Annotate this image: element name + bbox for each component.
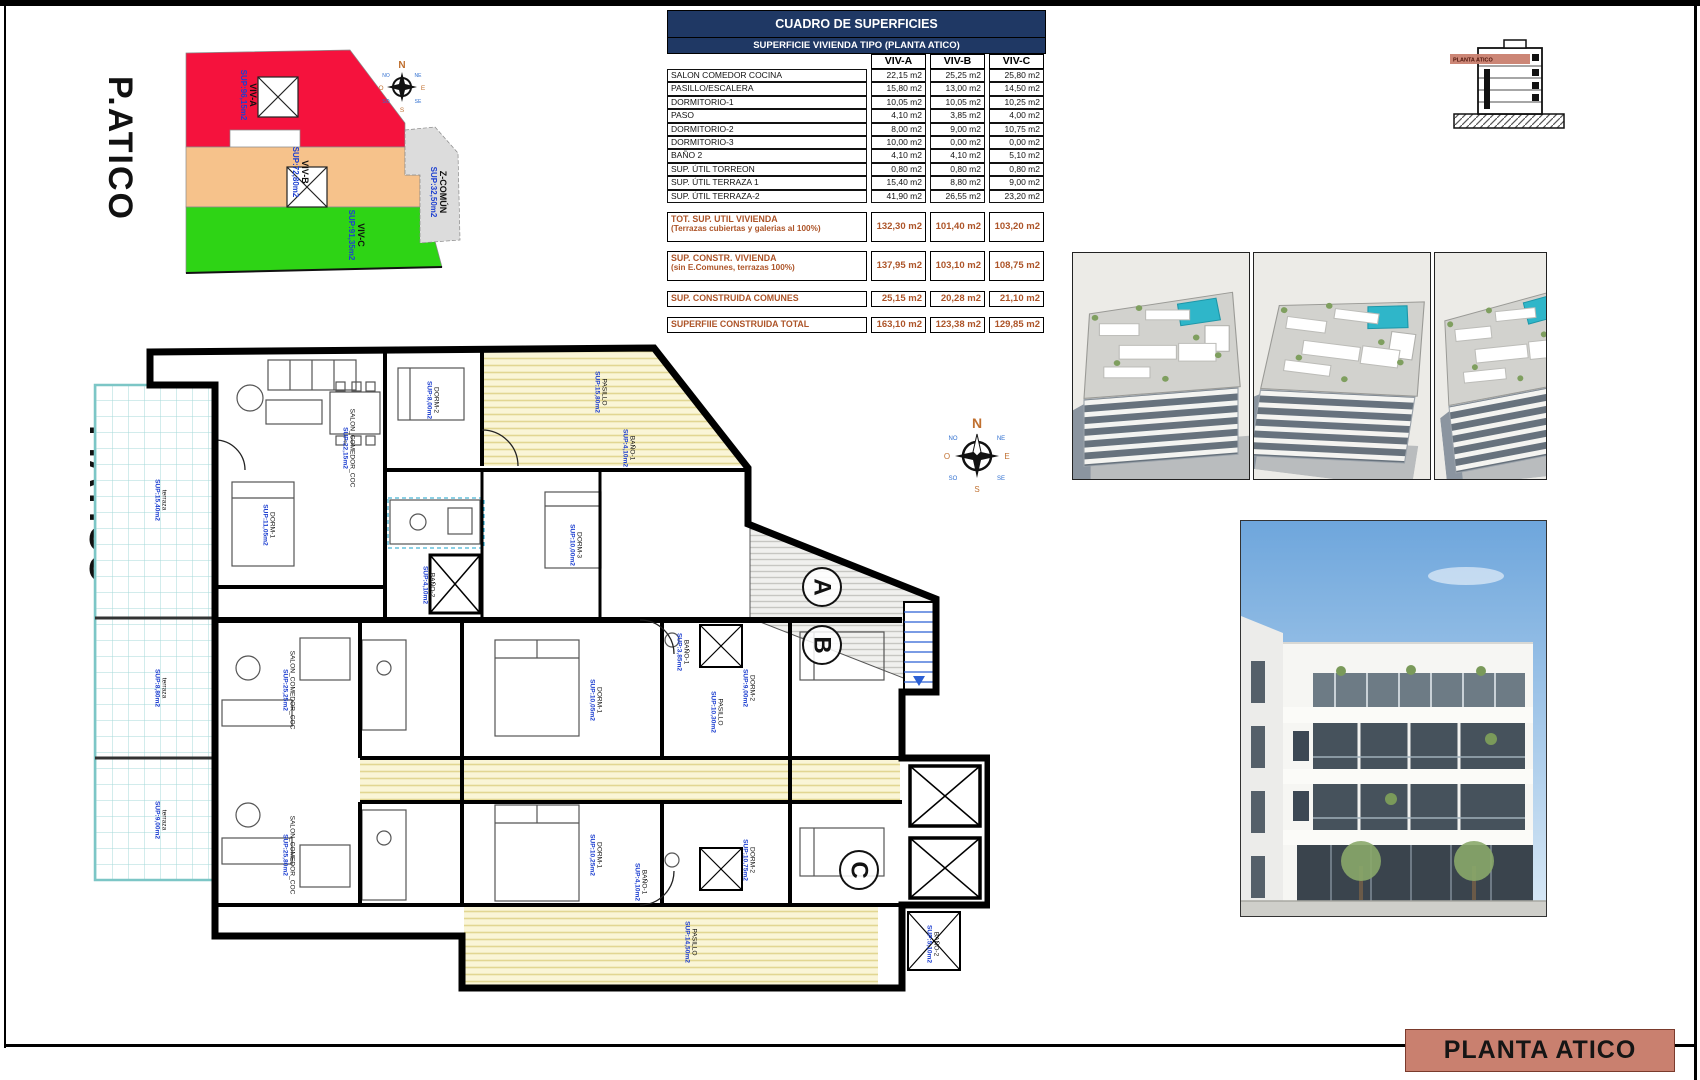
row-value: 13,00 m2 — [930, 82, 985, 95]
zone-label-vivb: VIV-BSUP:72,80m2 — [290, 147, 310, 198]
row-value: 15,40 m2 — [871, 176, 926, 189]
sheet-border-left — [4, 0, 6, 1048]
summary-value: 20,28 m2 — [930, 291, 985, 307]
floor-plan — [85, 332, 990, 997]
sheet-title: PLANTA ATICO — [1444, 1036, 1637, 1065]
table-row: DORMITORIO-310,00 m20,00 m20,00 m2 — [667, 136, 1046, 149]
row-value: 3,85 m2 — [930, 109, 985, 122]
row-value: 4,00 m2 — [989, 109, 1044, 122]
plan-room-label: BAÑO-2SUP:4,10m2 — [421, 566, 436, 604]
summary-value: 101,40 m2 — [930, 212, 985, 242]
plan-room-label: PASILLOSUP:15,80m2 — [593, 371, 608, 413]
plan-room-label: DORM-1SUP:11,05m2 — [261, 504, 276, 545]
summary-value: 108,75 m2 — [989, 251, 1044, 281]
corridor-hatch-mid — [360, 760, 900, 802]
summary-label: TOT. SUP. UTIL VIVIENDA(Terrazas cubiert… — [667, 212, 867, 242]
svg-text:SE: SE — [997, 476, 1005, 482]
row-value: 10,05 m2 — [930, 96, 985, 109]
svg-text:NE: NE — [997, 436, 1005, 442]
summary-label: SUPERFIIE CONSTRUIDA TOTAL — [667, 317, 867, 333]
unit-marker-a: A — [802, 567, 842, 607]
row-label: PASILLO/ESCALERA — [667, 82, 867, 95]
row-value: 4,10 m2 — [871, 109, 926, 122]
sheet-border-right — [1694, 0, 1697, 1080]
summary-value: 25,15 m2 — [871, 291, 926, 307]
row-value: 4,10 m2 — [871, 149, 926, 162]
summary-row: TOT. SUP. UTIL VIVIENDA(Terrazas cubiert… — [667, 212, 1046, 242]
zone-label-zcomn: Z-COMÚNSUP:32,50m2 — [428, 167, 448, 218]
zone-label-viva: VIV-ASUP:96,15m2 — [238, 70, 258, 121]
svg-text:SO: SO — [949, 476, 958, 482]
table-row: BAÑO 24,10 m24,10 m25,10 m2 — [667, 149, 1046, 162]
svg-text:E: E — [421, 85, 426, 92]
surface-table-header: VIV-AVIV-BVIV-C — [667, 54, 1046, 69]
summary-label: SUP. CONSTRUIDA COMUNES — [667, 291, 867, 307]
table-row: SUP. ÚTIL TERRAZA 115,40 m28,80 m29,00 m… — [667, 176, 1046, 189]
summary-value: 21,10 m2 — [989, 291, 1044, 307]
plan-room-label: BAÑO-1SUP:4,10m2 — [633, 863, 648, 901]
table-row: DORMITORIO-28,00 m29,00 m210,75 m2 — [667, 123, 1046, 136]
plan-room-label: BAÑO-1SUP:3,85m2 — [675, 633, 690, 671]
unit-marker-b: B — [802, 625, 842, 665]
surface-table-subtitle: SUPERFICIE VIVIENDA TIPO (PLANTA ATICO) — [667, 38, 1046, 54]
row-label: PASO — [667, 109, 867, 122]
table-row: PASILLO/ESCALERA15,80 m213,00 m214,50 m2 — [667, 82, 1046, 95]
table-row: SALON COMEDOR COCINA22,15 m225,25 m225,8… — [667, 69, 1046, 82]
row-value: 9,00 m2 — [989, 176, 1044, 189]
summary-row: SUP. CONSTR. VIVIENDA(sin E.Comunes, ter… — [667, 251, 1046, 281]
plan-room-label: SALON_COMEDOR_COCSUP:25,25m2 — [281, 651, 296, 730]
summary-value: 137,95 m2 — [871, 251, 926, 281]
summary-row: SUPERFIIE CONSTRUIDA TOTAL163,10 m2123,3… — [667, 317, 1046, 333]
plan-room-label: BAÑO-2SUP:5,10m2 — [925, 925, 940, 963]
row-value: 26,55 m2 — [930, 190, 985, 203]
table-row: SUP. ÚTIL TORREON0,80 m20,80 m20,80 m2 — [667, 163, 1046, 176]
plan-room-label: DORM-2SUP:10,75m2 — [741, 839, 756, 881]
plan-room-label: terrazaSUP:15,40m2 — [153, 479, 168, 521]
summary-value: 163,10 m2 — [871, 317, 926, 333]
stair-hall-hatch — [482, 350, 746, 466]
plan-room-label: terrazaSUP:8,80m2 — [153, 669, 168, 707]
building-facade-photo — [1240, 520, 1547, 917]
plan-room-label: DORM-2SUP:8,00m2 — [425, 381, 440, 419]
row-label: BAÑO 2 — [667, 149, 867, 162]
row-value: 8,80 m2 — [930, 176, 985, 189]
svg-text:NO: NO — [949, 436, 958, 442]
summary-value: 103,20 m2 — [989, 212, 1044, 242]
row-value: 41,90 m2 — [871, 190, 926, 203]
svg-text:NO: NO — [382, 73, 390, 79]
zone-label-vivc: VIV-CSUP:91,35m2 — [346, 210, 366, 261]
plan-room-label: terrazaSUP:9,00m2 — [153, 801, 168, 839]
row-label: SUP. ÚTIL TORREON — [667, 163, 867, 176]
row-value: 25,25 m2 — [930, 69, 985, 82]
row-label: SUP. ÚTIL TERRAZA-2 — [667, 190, 867, 203]
sheet-title-bar: PLANTA ATICO — [1405, 1029, 1675, 1072]
summary-value: 123,38 m2 — [930, 317, 985, 333]
plan-room-label: PASILLOSUP:14,50m2 — [683, 921, 698, 963]
svg-text:NE: NE — [415, 73, 423, 79]
svg-text:N: N — [972, 415, 982, 431]
row-value: 10,00 m2 — [871, 136, 926, 149]
surface-table-rows: SALON COMEDOR COCINA22,15 m225,25 m225,8… — [667, 69, 1046, 203]
svg-text:E: E — [1004, 452, 1009, 461]
stairs-icon — [904, 602, 934, 690]
row-value: 23,20 m2 — [989, 190, 1044, 203]
plan-room-label: DORM-1SUP:10,05m2 — [588, 679, 603, 721]
svg-text:O: O — [378, 85, 383, 92]
svg-text:SO: SO — [382, 99, 389, 105]
render-aerial-3 — [1434, 252, 1547, 480]
row-value: 0,80 m2 — [871, 163, 926, 176]
row-value: 0,80 m2 — [989, 163, 1044, 176]
row-value: 0,80 m2 — [930, 163, 985, 176]
row-value: 10,75 m2 — [989, 123, 1044, 136]
svg-text:S: S — [400, 107, 405, 114]
row-value: 4,10 m2 — [930, 149, 985, 162]
surface-table: CUADRO DE SUPERFICIES SUPERFICIE VIVIEND… — [667, 10, 1046, 333]
row-value: 15,80 m2 — [871, 82, 926, 95]
row-label: SUP. ÚTIL TERRAZA 1 — [667, 176, 867, 189]
row-value: 0,00 m2 — [930, 136, 985, 149]
summary-value: 132,30 m2 — [871, 212, 926, 242]
summary-value: 129,85 m2 — [989, 317, 1044, 333]
svg-text:S: S — [974, 485, 979, 494]
row-value: 14,50 m2 — [989, 82, 1044, 95]
site-plan-title: P.ATICO — [100, 76, 139, 221]
plan-room-label: SALON_COMEDOR_COCSUP:22,15m2 — [341, 409, 356, 488]
svg-text:SE: SE — [415, 99, 422, 105]
unit-marker-c: C — [839, 850, 879, 890]
plan-room-label: DORM-1SUP:10,25m2 — [588, 834, 603, 876]
row-value: 25,80 m2 — [989, 69, 1044, 82]
surface-table-summary: TOT. SUP. UTIL VIVIENDA(Terrazas cubiert… — [667, 212, 1046, 333]
summary-row: SUP. CONSTRUIDA COMUNES25,15 m220,28 m22… — [667, 291, 1046, 307]
render-aerial-1 — [1072, 252, 1250, 480]
plan-room-label: SALON_COMEDOR_COCSUP:25,80m2 — [281, 816, 296, 895]
compass-icon: N O E S NO NE SO SE — [935, 398, 1020, 503]
section-atico-label: PLANTA ATICO — [1453, 58, 1493, 64]
zone-viv-c — [186, 207, 442, 273]
row-value: 8,00 m2 — [871, 123, 926, 136]
row-value: 0,00 m2 — [989, 136, 1044, 149]
column-header: VIV-B — [930, 54, 985, 69]
building-section-diagram: PLANTA ATICO — [1448, 34, 1570, 138]
table-row: SUP. ÚTIL TERRAZA-241,90 m226,55 m223,20… — [667, 190, 1046, 203]
row-value: 5,10 m2 — [989, 149, 1044, 162]
row-value: 22,15 m2 — [871, 69, 926, 82]
row-value: 9,00 m2 — [930, 123, 985, 136]
column-header: VIV-C — [989, 54, 1044, 69]
plan-room-label: PASILLOSUP:10,30m2 — [709, 691, 724, 733]
render-aerial-2 — [1253, 252, 1431, 480]
corridor-hatch-bottom — [464, 907, 878, 985]
svg-text:O: O — [944, 452, 950, 461]
svg-text:N: N — [398, 60, 405, 71]
row-value: 10,05 m2 — [871, 96, 926, 109]
surface-table-title: CUADRO DE SUPERFICIES — [667, 10, 1046, 38]
summary-value: 103,10 m2 — [930, 251, 985, 281]
column-header: VIV-A — [871, 54, 926, 69]
plan-room-label: DORM-2SUP:9,00m2 — [741, 669, 756, 707]
row-label: DORMITORIO-3 — [667, 136, 867, 149]
table-row: DORMITORIO-110,05 m210,05 m210,25 m2 — [667, 96, 1046, 109]
plan-room-label: BAÑO-1SUP:4,10m2 — [621, 429, 636, 467]
row-value: 10,25 m2 — [989, 96, 1044, 109]
drawing-sheet: P.ATICO N O E S NO NE SO SE VIV-ASUP:96,… — [0, 0, 1700, 1080]
table-row: PASO4,10 m23,85 m24,00 m2 — [667, 109, 1046, 122]
row-label: DORMITORIO-2 — [667, 123, 867, 136]
plan-room-label: DORM-3SUP:10,00m2 — [568, 524, 583, 566]
summary-label: SUP. CONSTR. VIVIENDA(sin E.Comunes, ter… — [667, 251, 867, 281]
row-label: DORMITORIO-1 — [667, 96, 867, 109]
sheet-border-top — [0, 0, 1700, 6]
row-label: SALON COMEDOR COCINA — [667, 69, 867, 82]
